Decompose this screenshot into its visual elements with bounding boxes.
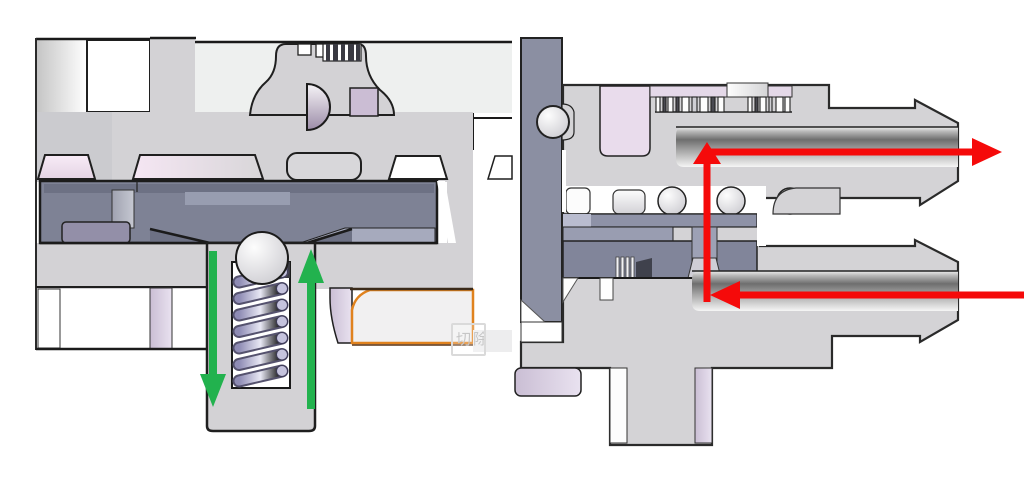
green-arrow-up-shaft bbox=[307, 281, 315, 409]
watermark: 切除 bbox=[451, 323, 486, 356]
green-arrow-down-shaft bbox=[209, 251, 217, 377]
chamber-left-block bbox=[62, 222, 130, 243]
white-seal bbox=[389, 156, 447, 179]
red-arrow-in-shaft bbox=[738, 292, 1024, 299]
two-panel-cad-cross-section: 切除 bbox=[0, 0, 1024, 486]
dome-lavender-insert bbox=[350, 88, 378, 116]
top-pillar bbox=[150, 38, 195, 114]
o-ring bbox=[717, 187, 745, 215]
o-ring-row bbox=[563, 186, 840, 215]
white-step bbox=[727, 83, 768, 97]
dome-thread-ribs bbox=[323, 44, 361, 61]
top-left-cavity bbox=[87, 40, 150, 112]
plate-gap bbox=[562, 150, 566, 212]
right-fitting-section bbox=[515, 38, 1024, 445]
pink-seal bbox=[38, 155, 95, 179]
red-arrow-out-head bbox=[972, 138, 1002, 166]
plate-ball bbox=[537, 106, 569, 138]
leg-white-strip bbox=[610, 368, 627, 443]
chamber-inset bbox=[185, 192, 290, 205]
base-lavender-bar bbox=[515, 368, 581, 396]
pink-strip bbox=[768, 86, 792, 97]
o-ring bbox=[658, 187, 686, 215]
ribbed-pin bbox=[616, 257, 652, 278]
body-hump bbox=[773, 188, 840, 214]
red-arrow-up-shaft bbox=[704, 160, 711, 302]
lavender-wedge bbox=[330, 288, 352, 343]
top-left-gradient-block bbox=[36, 39, 87, 112]
valve-chamber bbox=[40, 181, 456, 243]
left-valve-section bbox=[36, 38, 512, 431]
lavender-strip bbox=[150, 288, 172, 349]
check-ball bbox=[236, 232, 288, 284]
leg-lavender-strip bbox=[695, 368, 712, 443]
pink-sleeve bbox=[600, 86, 650, 156]
mounting-plate bbox=[521, 38, 562, 322]
thread-ribs bbox=[655, 97, 792, 112]
pink-strip bbox=[650, 86, 727, 97]
lower-left-slab bbox=[36, 287, 207, 349]
pink-seal-wide bbox=[133, 155, 263, 179]
dome-notch bbox=[298, 44, 311, 55]
white-seal-partial bbox=[488, 156, 512, 179]
body-notch bbox=[600, 278, 613, 300]
cross-section-drawing bbox=[0, 0, 1024, 486]
plate-white-band bbox=[521, 322, 562, 342]
gray-seal bbox=[287, 153, 361, 180]
red-arrow-out-shaft bbox=[707, 149, 974, 156]
